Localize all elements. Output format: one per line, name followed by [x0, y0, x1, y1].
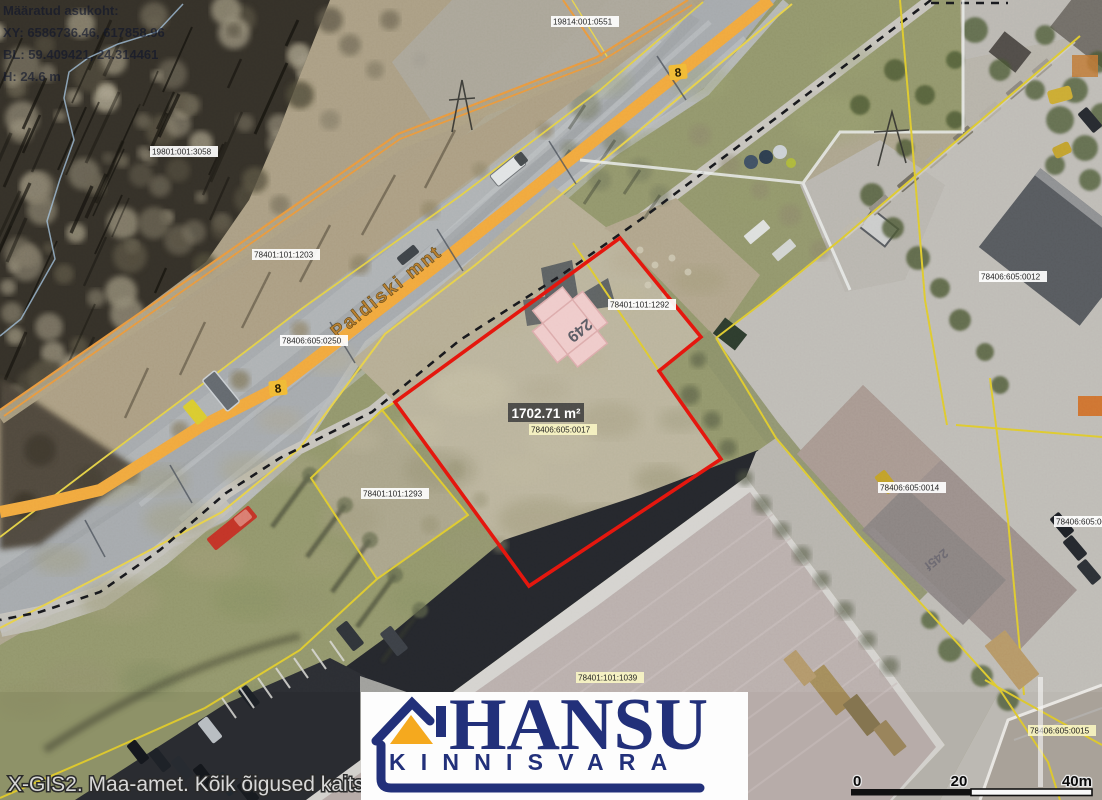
svg-text:20: 20 [951, 773, 968, 790]
svg-text:40m: 40m [1062, 773, 1092, 790]
svg-text:X-GIS2. Maa-amet. Kõik õigused: X-GIS2. Maa-amet. Kõik õigused kaitst [8, 773, 370, 796]
svg-text:KINNISVARA: KINNISVARA [389, 749, 682, 775]
svg-text:0: 0 [853, 773, 861, 790]
